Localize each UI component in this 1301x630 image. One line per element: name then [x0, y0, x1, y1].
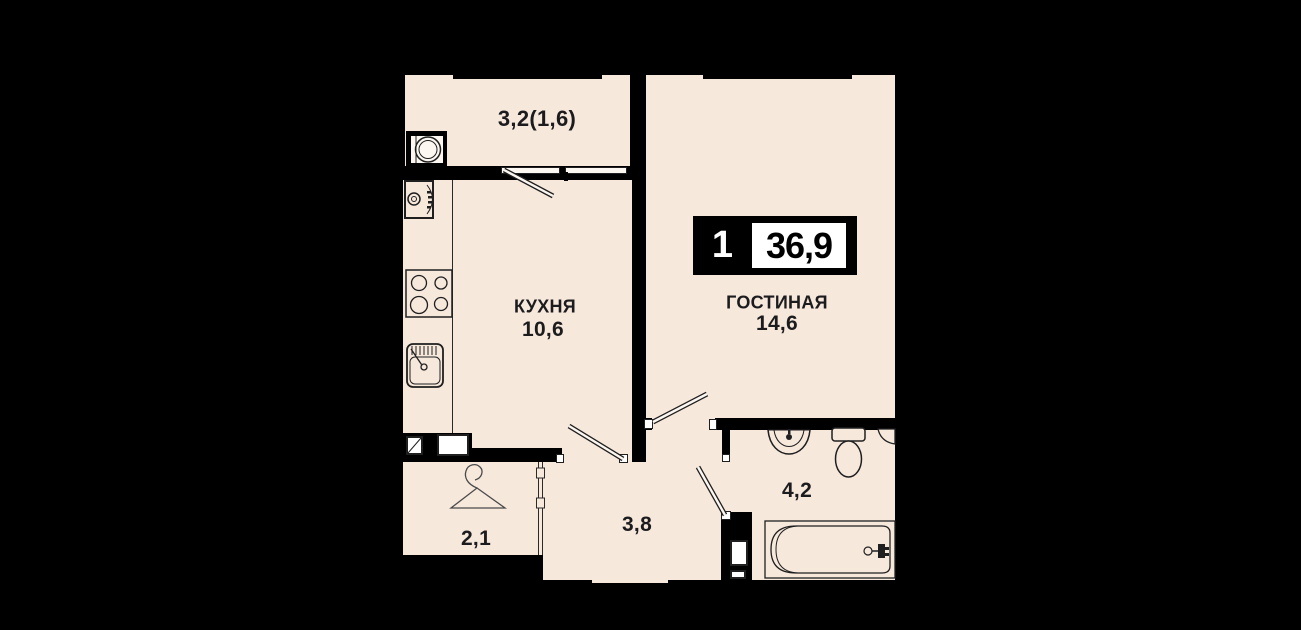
floor-plan: 1 36,9 3,2(1,6) КУХНЯ 10,6 ГОСТИНАЯ 14,6… — [0, 0, 1301, 630]
badge-total-area: 36,9 — [766, 225, 832, 267]
vent-diagonal — [408, 438, 421, 453]
corner-shelf-icon — [878, 429, 895, 444]
living-door-leaf — [653, 394, 707, 422]
kitchen-door-leaf — [569, 426, 623, 459]
washing-machine-icon — [406, 131, 447, 168]
corridor-area-label: 3,8 — [622, 513, 652, 537]
kitchen-name-label: КУХНЯ — [514, 297, 576, 318]
bath-sink-icon — [768, 429, 810, 454]
kitchen-area-label: 10,6 — [522, 318, 564, 342]
hall-partition — [537, 462, 545, 555]
badge-area-box: 36,9 — [752, 223, 846, 268]
bathtub-icon — [765, 521, 895, 578]
hanger-icon — [451, 465, 505, 508]
bathroom-door-leaf — [698, 467, 725, 515]
living-area-label: 14,6 — [756, 312, 798, 336]
toilet-icon — [832, 428, 865, 477]
stove-icon — [406, 270, 452, 317]
oven-icon — [405, 181, 433, 218]
balcony-label: 3,2(1,6) — [498, 106, 576, 132]
kitchen-sink-icon — [407, 344, 443, 387]
balcony-door-leaf — [504, 170, 553, 196]
living-name-label: ГОСТИНАЯ — [726, 293, 828, 314]
badge-rooms-count: 1 — [693, 216, 752, 275]
apartment-badge: 1 36,9 — [693, 216, 857, 275]
bathroom-area-label: 4,2 — [782, 479, 812, 503]
hall-area-label: 2,1 — [461, 527, 491, 551]
